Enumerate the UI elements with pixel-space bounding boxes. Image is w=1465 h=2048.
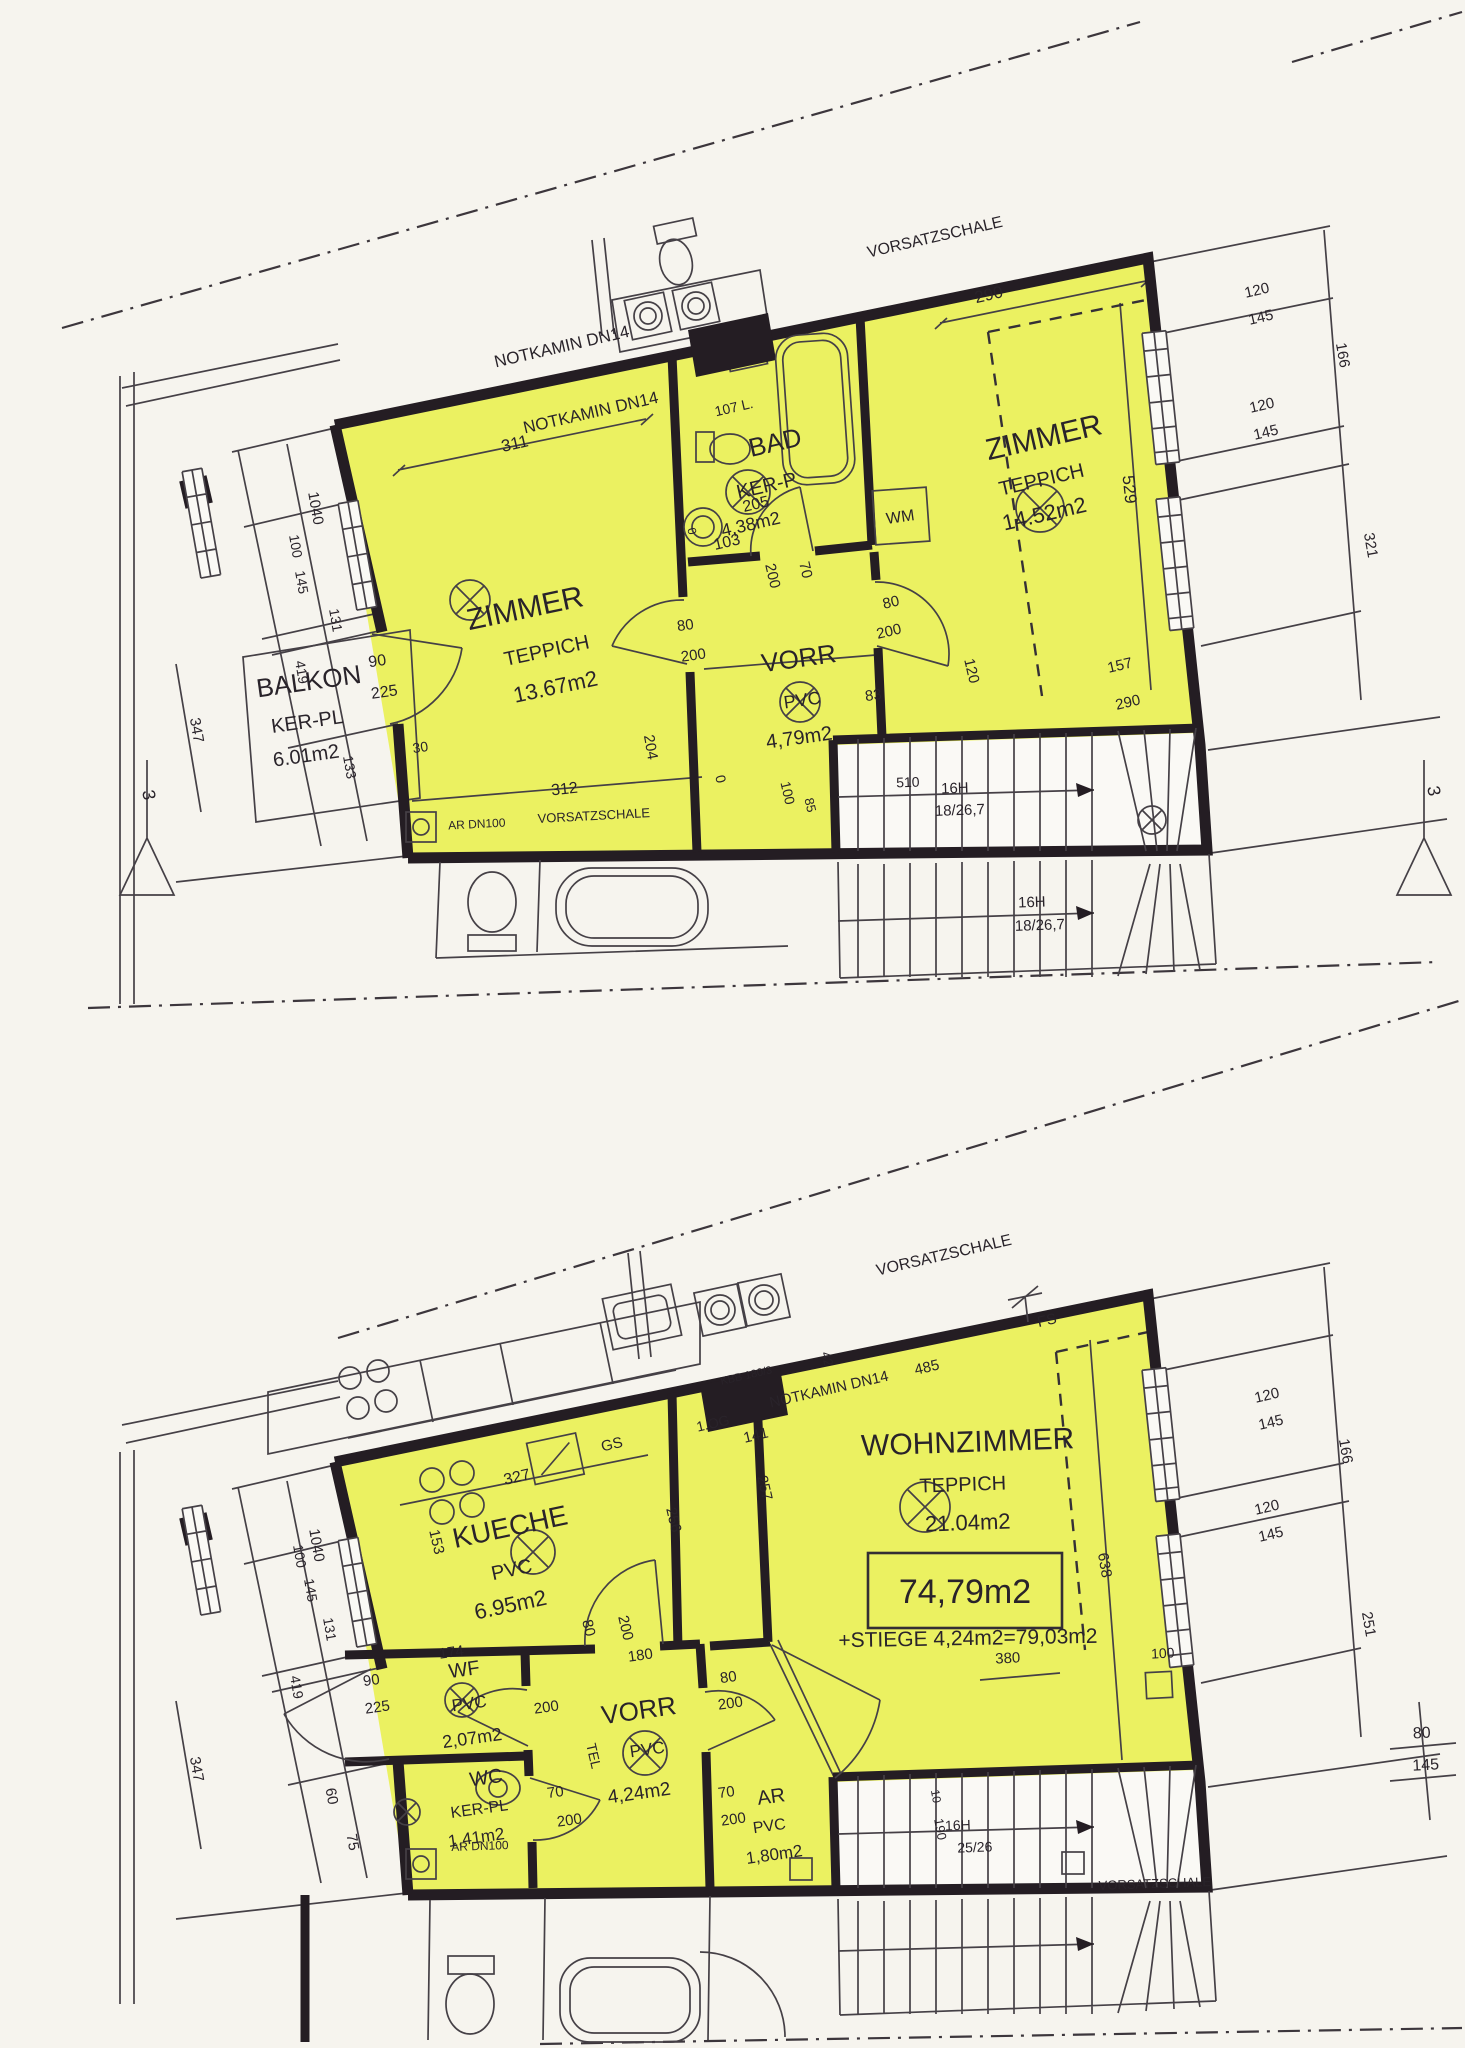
floor-plan-drawing: NOTKAMIN DN14 NOTKAMIN DN14 311 VORSATZS…	[0, 0, 1465, 2048]
dim-200b: 200	[720, 1809, 747, 1829]
dim-200r: 200	[717, 1693, 744, 1713]
stair2-16h: 16H	[1018, 894, 1046, 912]
room-wohnzimmer-floor: TEPPICH	[919, 1472, 1006, 1497]
dim-70a: 70	[546, 1783, 565, 1802]
stair1-ratio: 18/26,7	[935, 801, 986, 820]
dim-30: 30	[411, 738, 429, 756]
dim-200-wf: 200	[533, 1697, 560, 1717]
dim-510: 510	[896, 774, 920, 791]
dim-312: 312	[550, 780, 578, 800]
room-ar-name: AR	[756, 1784, 787, 1810]
dim-380: 380	[995, 1649, 1021, 1667]
dim-83: 83	[864, 686, 883, 705]
dim-100-bp: 100	[1151, 1644, 1175, 1661]
dim-75: 75	[343, 1833, 363, 1852]
dim-80-zdoor: 80	[676, 616, 695, 635]
dim-529: 529	[1119, 474, 1141, 504]
dim-80-br: 80	[1412, 1725, 1431, 1743]
stiege-note: +STIEGE 4,24m2=79,03m2	[838, 1625, 1098, 1653]
dim-200-zdoor: 200	[680, 645, 707, 665]
label-ardn100-2: AR DN100	[451, 1838, 509, 1854]
stair2-ratio: 18/26,7	[1015, 916, 1066, 935]
dim-70b: 70	[717, 1783, 736, 1802]
stair3-ratio: 25/26	[957, 1838, 993, 1855]
dim-200a: 200	[556, 1810, 583, 1830]
room-wc-name: WC	[468, 1765, 504, 1791]
room-wohnzimmer-area: 21.04m2	[925, 1509, 1011, 1537]
dim-225-2: 225	[364, 1697, 391, 1717]
dim-10: 10	[928, 1789, 944, 1805]
scan-page: NOTKAMIN DN14 NOTKAMIN DN14 311 VORSATZS…	[0, 0, 1465, 2048]
dim-90-2: 90	[362, 1671, 381, 1690]
dim-180: 180	[627, 1645, 654, 1665]
dim-145-br: 145	[1412, 1756, 1440, 1774]
dim-60: 60	[322, 1787, 342, 1806]
total-area: 74,79m2	[899, 1573, 1031, 1611]
stair1-16h: 16H	[941, 780, 969, 798]
room-wf-name: WF	[447, 1657, 481, 1683]
dim-90: 90	[367, 652, 387, 671]
dim-80r: 80	[719, 1668, 738, 1687]
